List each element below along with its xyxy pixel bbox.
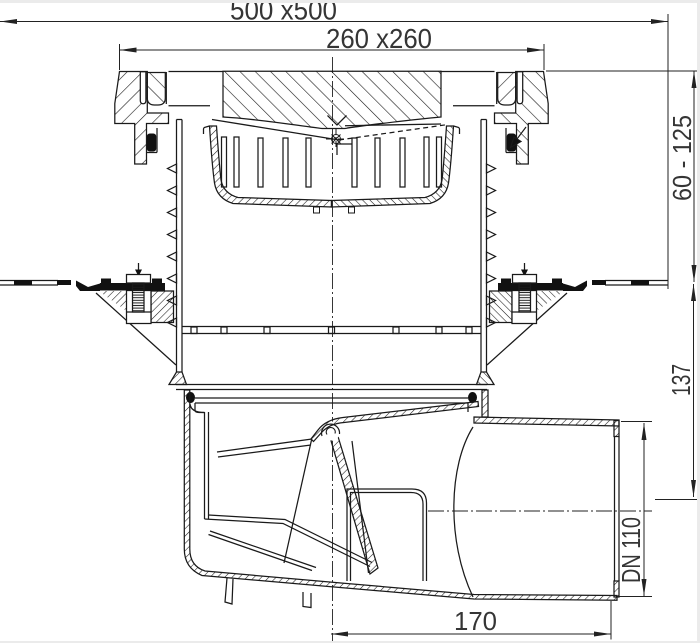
- svg-text:500 x500: 500 x500: [230, 0, 337, 26]
- svg-text:DN 110: DN 110: [616, 517, 646, 583]
- svg-text:137: 137: [666, 364, 696, 396]
- svg-text:60 - 125: 60 - 125: [667, 115, 697, 201]
- svg-text:260 x260: 260 x260: [326, 23, 432, 54]
- svg-text:170: 170: [454, 606, 497, 636]
